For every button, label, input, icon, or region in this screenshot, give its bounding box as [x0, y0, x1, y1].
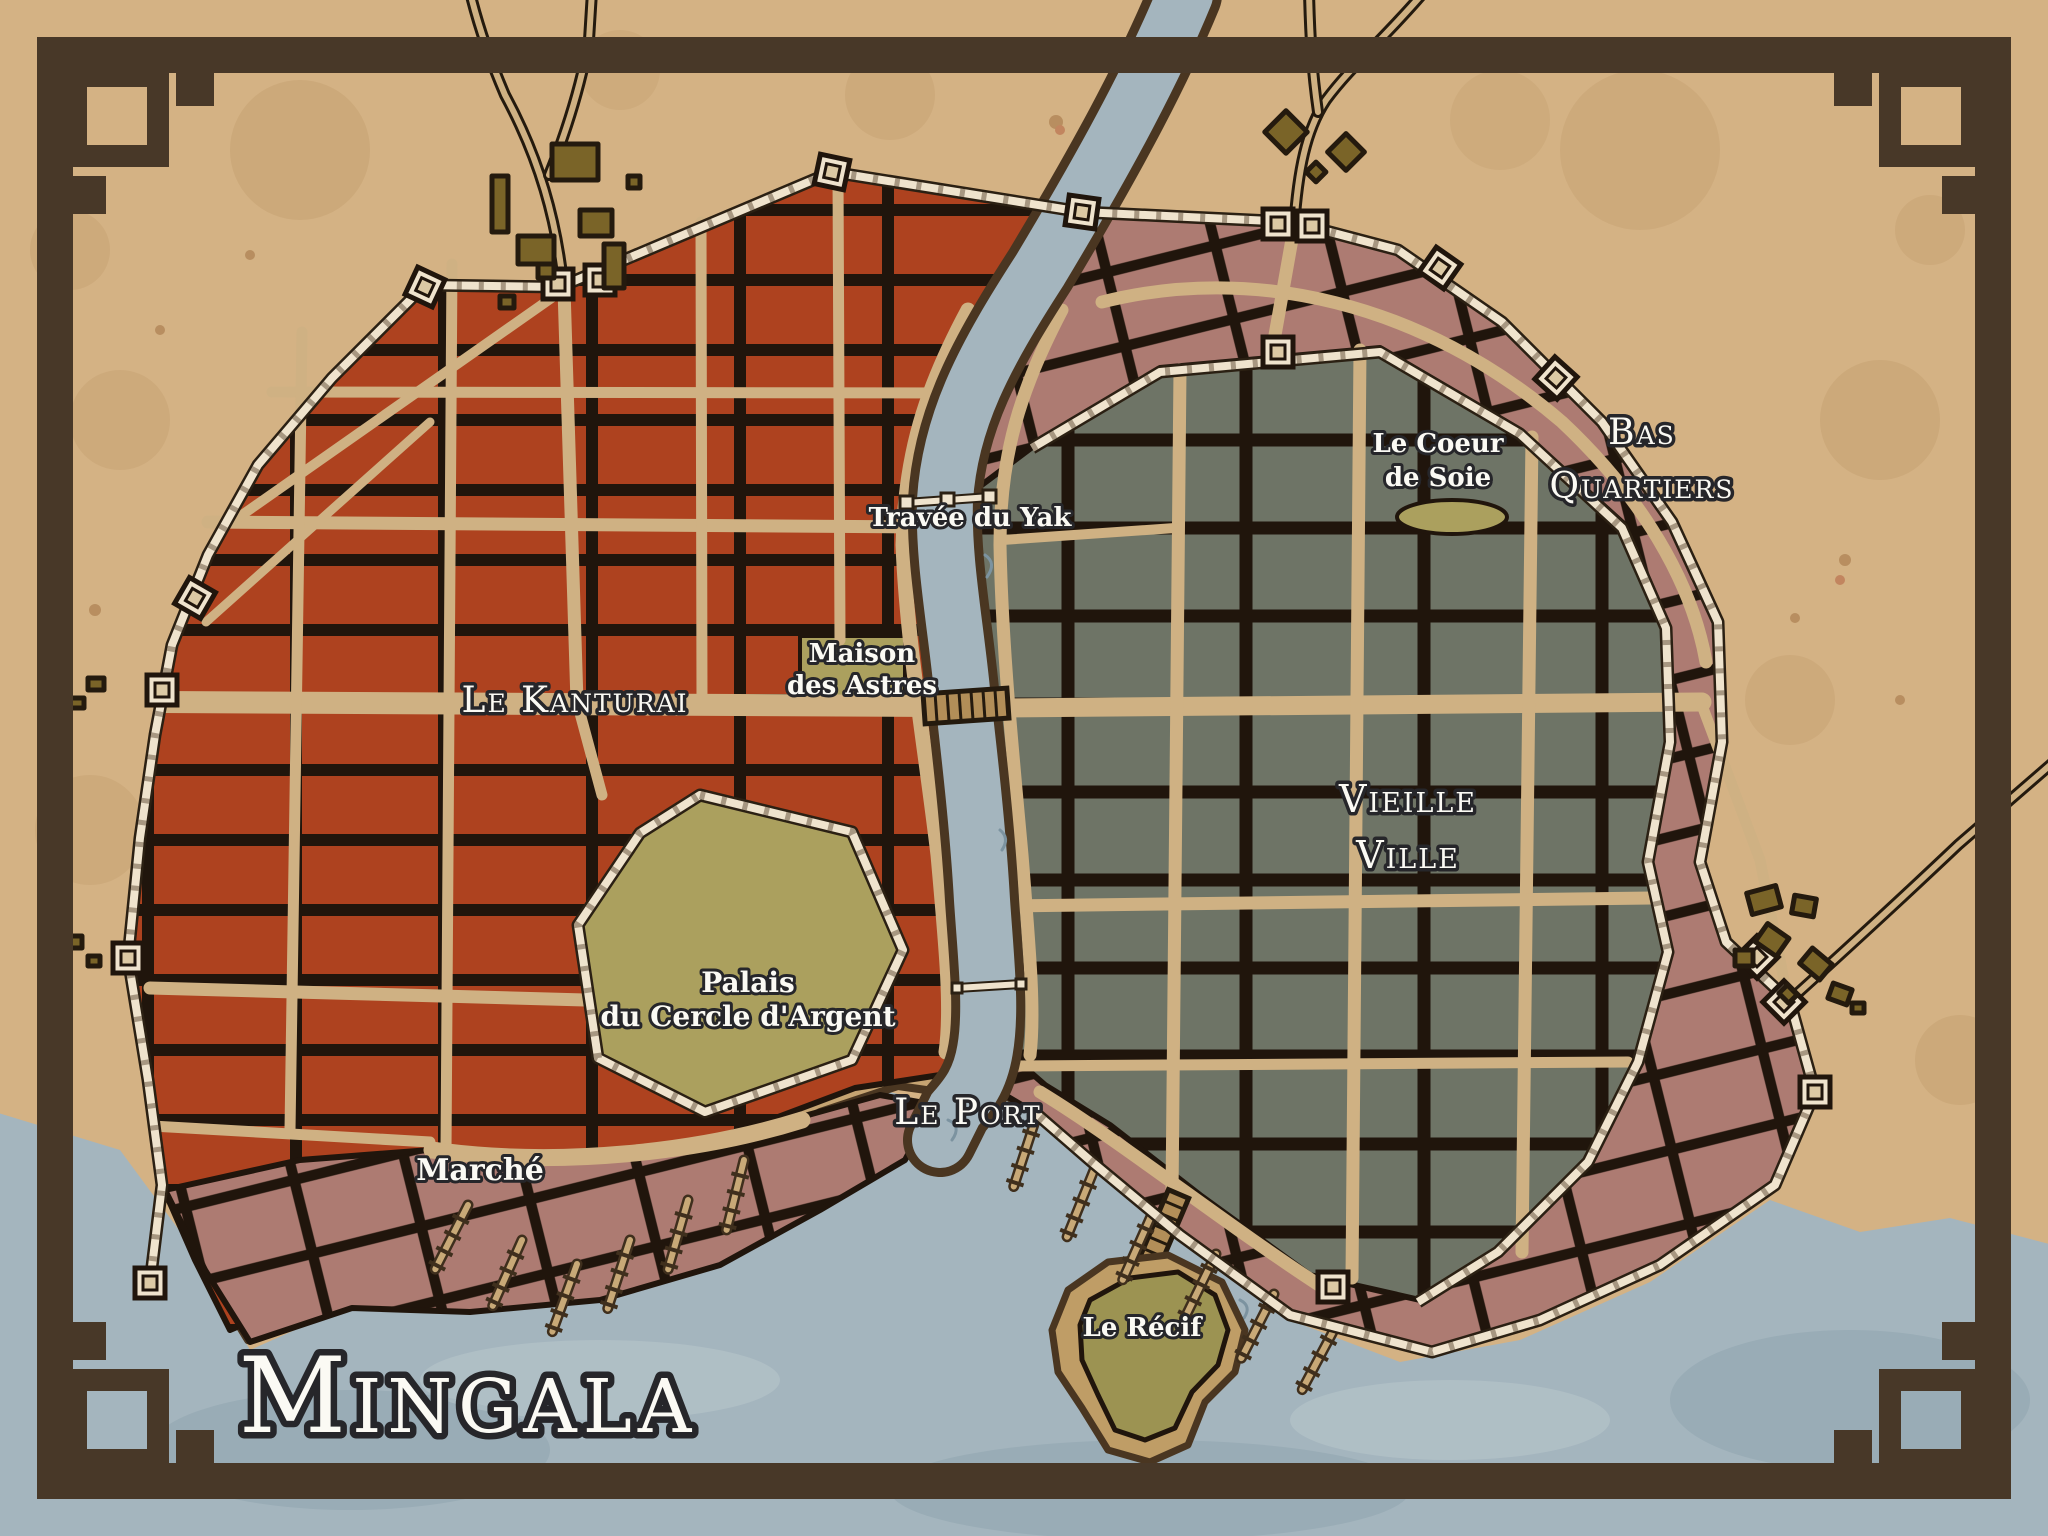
label-coeur-de-soie-line2: de Soie	[1385, 463, 1491, 493]
map-canvas: Le Kanturai Vieille Ville Bas Quartiers …	[0, 0, 2048, 1536]
label-district-le-port: Le Port	[894, 1092, 1041, 1133]
label-palais-line1: Palais	[701, 966, 795, 999]
label-marche: Marché	[416, 1153, 544, 1188]
fantasy-city-map: Le Kanturai Vieille Ville Bas Quartiers …	[0, 0, 2048, 1536]
label-le-recif: Le Récif	[1083, 1313, 1204, 1343]
label-palais-line2: du Cercle d'Argent	[600, 1000, 895, 1033]
label-maison-line1: Maison	[809, 639, 915, 669]
label-coeur-de-soie-line1: Le Coeur	[1372, 429, 1503, 459]
label-district-vieille-ville-line1: Vieille	[1338, 777, 1477, 821]
label-maison-line2: des Astres	[787, 671, 937, 701]
label-district-bas-quartiers-line1: Bas	[1608, 412, 1676, 453]
label-district-kanturai: Le Kanturai	[462, 680, 689, 721]
map-title: Mingala	[239, 1335, 698, 1457]
label-travee-du-yak: Travée du Yak	[869, 503, 1073, 533]
label-district-bas-quartiers-line2: Quartiers	[1549, 466, 1734, 507]
label-district-vieille-ville-line2: Ville	[1355, 833, 1460, 877]
coeur-de-soie-ground	[1397, 500, 1507, 534]
